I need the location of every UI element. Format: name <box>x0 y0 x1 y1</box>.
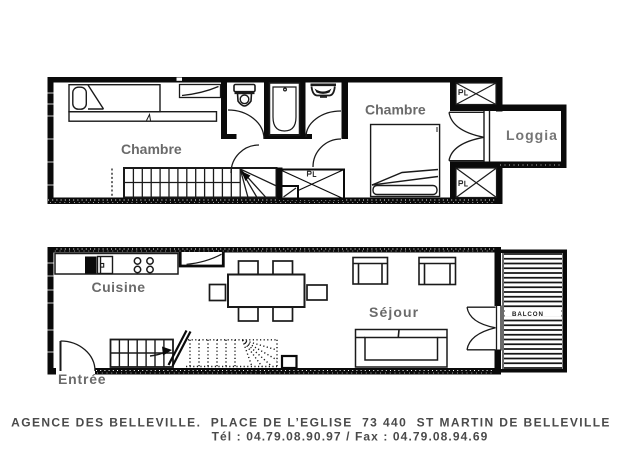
svg-text:Loggia: Loggia <box>506 127 558 143</box>
svg-text:Séjour: Séjour <box>369 304 419 320</box>
svg-text:Tél : 04.79.08.90.97 / Fax : 0: Tél : 04.79.08.90.97 / Fax : 04.79.08.94… <box>212 430 489 444</box>
svg-text:Chambre: Chambre <box>121 141 182 157</box>
svg-text:Cuisine: Cuisine <box>92 279 146 295</box>
svg-text:Entrée: Entrée <box>58 371 106 387</box>
svg-text:BALCON: BALCON <box>512 311 544 318</box>
svg-text:AGENCE DES BELLEVILLE. PLACE: AGENCE DES BELLEVILLE. PLACE DE L’EGLISE… <box>11 415 611 429</box>
svg-text:Chambre: Chambre <box>365 101 426 117</box>
